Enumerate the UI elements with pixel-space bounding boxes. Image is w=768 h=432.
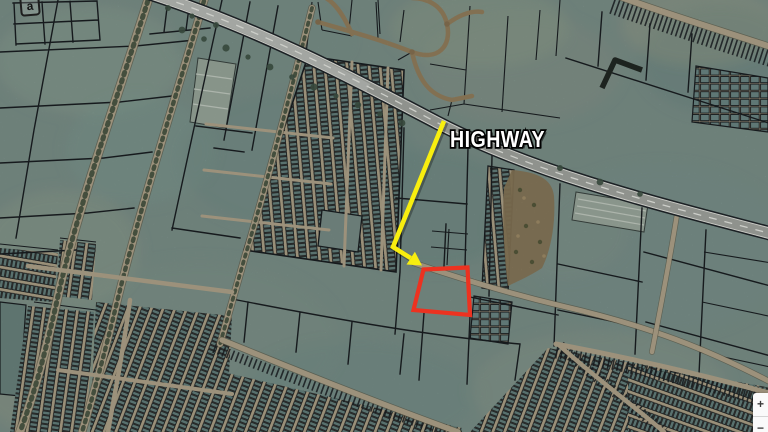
- zoom-control: + −: [753, 393, 768, 432]
- zoom-out-button[interactable]: −: [753, 417, 768, 432]
- watermark-letter: a: [19, 0, 41, 17]
- map-viewport[interactable]: HIGHWAY HIGHWAY a + −: [0, 0, 768, 432]
- zoom-in-button[interactable]: +: [753, 393, 768, 417]
- highway-label: HIGHWAY: [450, 126, 545, 152]
- grain-overlay: [0, 0, 768, 432]
- aerial-map[interactable]: HIGHWAY HIGHWAY: [0, 0, 768, 432]
